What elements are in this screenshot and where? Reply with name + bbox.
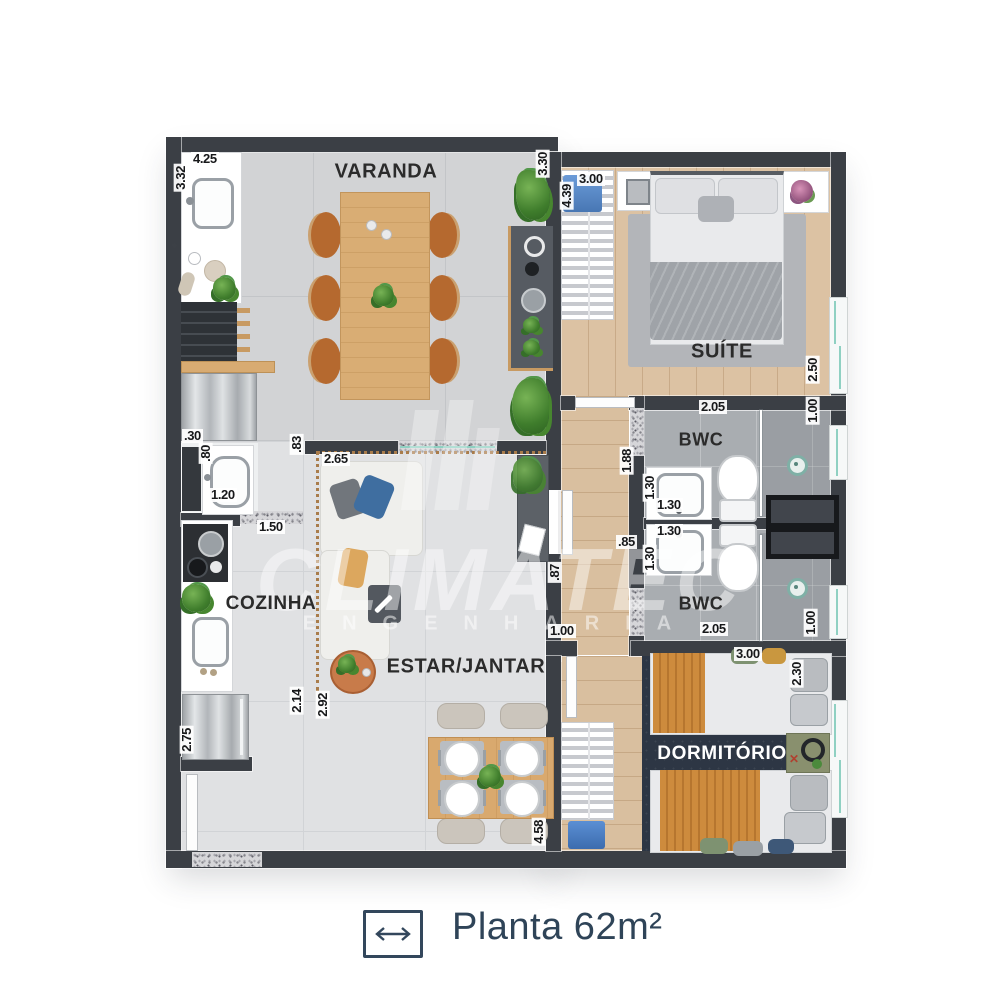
planter bbox=[521, 288, 546, 313]
shower-glass-2 bbox=[760, 535, 762, 641]
remote bbox=[374, 594, 393, 613]
bed-accent-pillow bbox=[700, 838, 728, 854]
wall bbox=[546, 641, 577, 656]
dorm-desk: ✕ bbox=[786, 733, 830, 773]
dimension-label: 1.30 bbox=[643, 545, 657, 573]
shower-glass-1 bbox=[760, 410, 762, 516]
plate bbox=[444, 741, 480, 777]
dimension-label: 2.05 bbox=[700, 622, 728, 636]
shower-head-icon bbox=[787, 455, 808, 476]
caption-icon-box bbox=[363, 910, 423, 958]
desk-item: ✕ bbox=[789, 754, 800, 765]
dimension-label: 3.32 bbox=[174, 164, 188, 192]
dimension-label: 4.39 bbox=[560, 182, 574, 210]
grill bbox=[181, 302, 237, 362]
floor-plan: ✕ bbox=[0, 0, 1000, 1000]
plate bbox=[504, 781, 540, 817]
dimension-label: 2.30 bbox=[790, 660, 804, 688]
picture-frame bbox=[626, 179, 650, 205]
chair bbox=[437, 818, 485, 844]
counter-item bbox=[172, 243, 177, 248]
window-bwc-1 bbox=[829, 425, 848, 480]
sliding-door-glass bbox=[400, 446, 495, 448]
room-label-varanda: VARANDA bbox=[335, 161, 438, 184]
dorm-wardrobe bbox=[561, 722, 614, 820]
dimension-label: 4.25 bbox=[191, 152, 219, 166]
duct-shaft bbox=[766, 495, 839, 528]
wall bbox=[545, 152, 846, 167]
burner bbox=[210, 561, 222, 573]
dimension-label: 1.00 bbox=[804, 609, 818, 637]
dimension-label: 1.00 bbox=[806, 397, 820, 425]
plate bbox=[504, 741, 540, 777]
room-label-bwc-1: BWC bbox=[679, 430, 724, 451]
side-table-plant bbox=[338, 656, 356, 673]
bed-pillow bbox=[790, 694, 828, 726]
planter bbox=[524, 236, 545, 257]
dimension-label: 2.65 bbox=[322, 452, 350, 466]
planter-plant bbox=[523, 318, 540, 333]
dimension-label: 2.05 bbox=[699, 400, 727, 414]
bed-accent-pillow bbox=[698, 196, 734, 222]
toilet bbox=[717, 543, 759, 592]
plant-icon bbox=[213, 277, 236, 300]
wall bbox=[166, 137, 558, 152]
dimension-label: 2.14 bbox=[290, 687, 304, 715]
door-suite bbox=[575, 397, 635, 408]
toilet-tank bbox=[719, 499, 757, 522]
bed-accent-pillow bbox=[768, 839, 794, 854]
chair bbox=[311, 275, 341, 321]
toilet bbox=[717, 455, 759, 504]
dimension-label: 1.20 bbox=[209, 488, 237, 502]
nightstand bbox=[778, 171, 829, 213]
room-label-dormitorio: DORMITÓRIO bbox=[657, 743, 787, 765]
dimension-label: 4.58 bbox=[532, 818, 546, 846]
cooktop bbox=[183, 524, 228, 582]
kitchen-plant bbox=[182, 584, 211, 612]
threshold-bwc-2 bbox=[630, 588, 644, 636]
dimension-label: 1.50 bbox=[257, 520, 285, 534]
dimension-label: .83 bbox=[290, 434, 304, 455]
dimension-label: 1.30 bbox=[655, 498, 683, 512]
door-entry bbox=[186, 774, 198, 851]
caption: Planta 62m² bbox=[0, 896, 1000, 966]
table-cup bbox=[381, 229, 392, 240]
caption-text: Planta 62m² bbox=[452, 906, 662, 949]
dimension-label: 3.00 bbox=[577, 172, 605, 186]
table-cup bbox=[366, 220, 377, 231]
projection-line bbox=[317, 451, 546, 454]
fridge-handle bbox=[240, 699, 243, 755]
dimension-label: .30 bbox=[182, 429, 203, 443]
dimension-label: 2.50 bbox=[806, 356, 820, 384]
bed-accent-pillow bbox=[762, 648, 786, 664]
wall bbox=[561, 396, 575, 410]
door-dormitorio bbox=[566, 656, 577, 718]
bed-blanket bbox=[650, 262, 782, 340]
room-label-suite: SUÍTE bbox=[691, 341, 753, 364]
headphones-icon bbox=[801, 738, 825, 762]
dimension-label: .85 bbox=[616, 535, 637, 549]
notebook bbox=[518, 524, 546, 556]
desk-item bbox=[812, 759, 822, 769]
duct-shaft bbox=[766, 527, 839, 559]
chair bbox=[437, 703, 485, 729]
soap-items bbox=[200, 668, 207, 675]
grill-rack bbox=[237, 308, 250, 313]
dimension-label: 2.75 bbox=[180, 726, 194, 754]
width-arrow-icon bbox=[373, 924, 413, 944]
burner bbox=[187, 557, 208, 578]
chair bbox=[427, 275, 457, 321]
table-plant-icon bbox=[373, 285, 394, 306]
table-plant-icon bbox=[479, 766, 501, 787]
counter-cup bbox=[188, 252, 201, 265]
shower-head-icon bbox=[787, 578, 808, 599]
window-suite bbox=[829, 297, 848, 394]
planter bbox=[525, 262, 539, 276]
vertical-garden-panel bbox=[508, 226, 553, 371]
bed-accent-pillow bbox=[733, 841, 763, 856]
room-label-bwc-2: BWC bbox=[679, 594, 724, 615]
door-estar-hall bbox=[562, 490, 573, 555]
varanda-sink bbox=[192, 178, 234, 229]
side-table-cup bbox=[362, 668, 371, 677]
projection-line bbox=[316, 451, 319, 691]
dimension-label: 3.00 bbox=[734, 647, 762, 661]
chair bbox=[311, 338, 341, 384]
kitchen-sink bbox=[192, 617, 229, 667]
dimension-label: 3.30 bbox=[536, 150, 550, 178]
flower-vase bbox=[791, 180, 813, 202]
faucet-icon bbox=[204, 474, 211, 481]
bed-pillow bbox=[790, 775, 828, 811]
room-label-cozinha: COZINHA bbox=[226, 593, 317, 615]
chair bbox=[427, 212, 457, 258]
plate bbox=[444, 781, 480, 817]
pan bbox=[198, 531, 224, 557]
planter-plant bbox=[523, 340, 540, 355]
plant-icon bbox=[513, 458, 543, 492]
grill-shelf bbox=[181, 361, 275, 373]
bed-blanket-orange bbox=[653, 653, 705, 733]
room-label-estar-jantar: ESTAR/JANTAR bbox=[387, 656, 546, 679]
dimension-label: .80 bbox=[199, 443, 213, 464]
plant-icon bbox=[512, 378, 549, 434]
chair bbox=[500, 703, 548, 729]
chair bbox=[311, 212, 341, 258]
chair bbox=[427, 338, 457, 384]
storage-box-blue bbox=[568, 821, 605, 849]
ottoman bbox=[368, 585, 401, 623]
dimension-label: 1.00 bbox=[548, 624, 576, 638]
dimension-label: 1.30 bbox=[655, 524, 683, 538]
dimension-label: .87 bbox=[548, 562, 562, 583]
threshold-entry bbox=[192, 852, 262, 867]
faucet-icon bbox=[186, 197, 194, 205]
window-bwc-2 bbox=[829, 585, 848, 639]
dimension-label: 1.88 bbox=[620, 447, 634, 475]
dimension-label: 2.92 bbox=[316, 691, 330, 719]
